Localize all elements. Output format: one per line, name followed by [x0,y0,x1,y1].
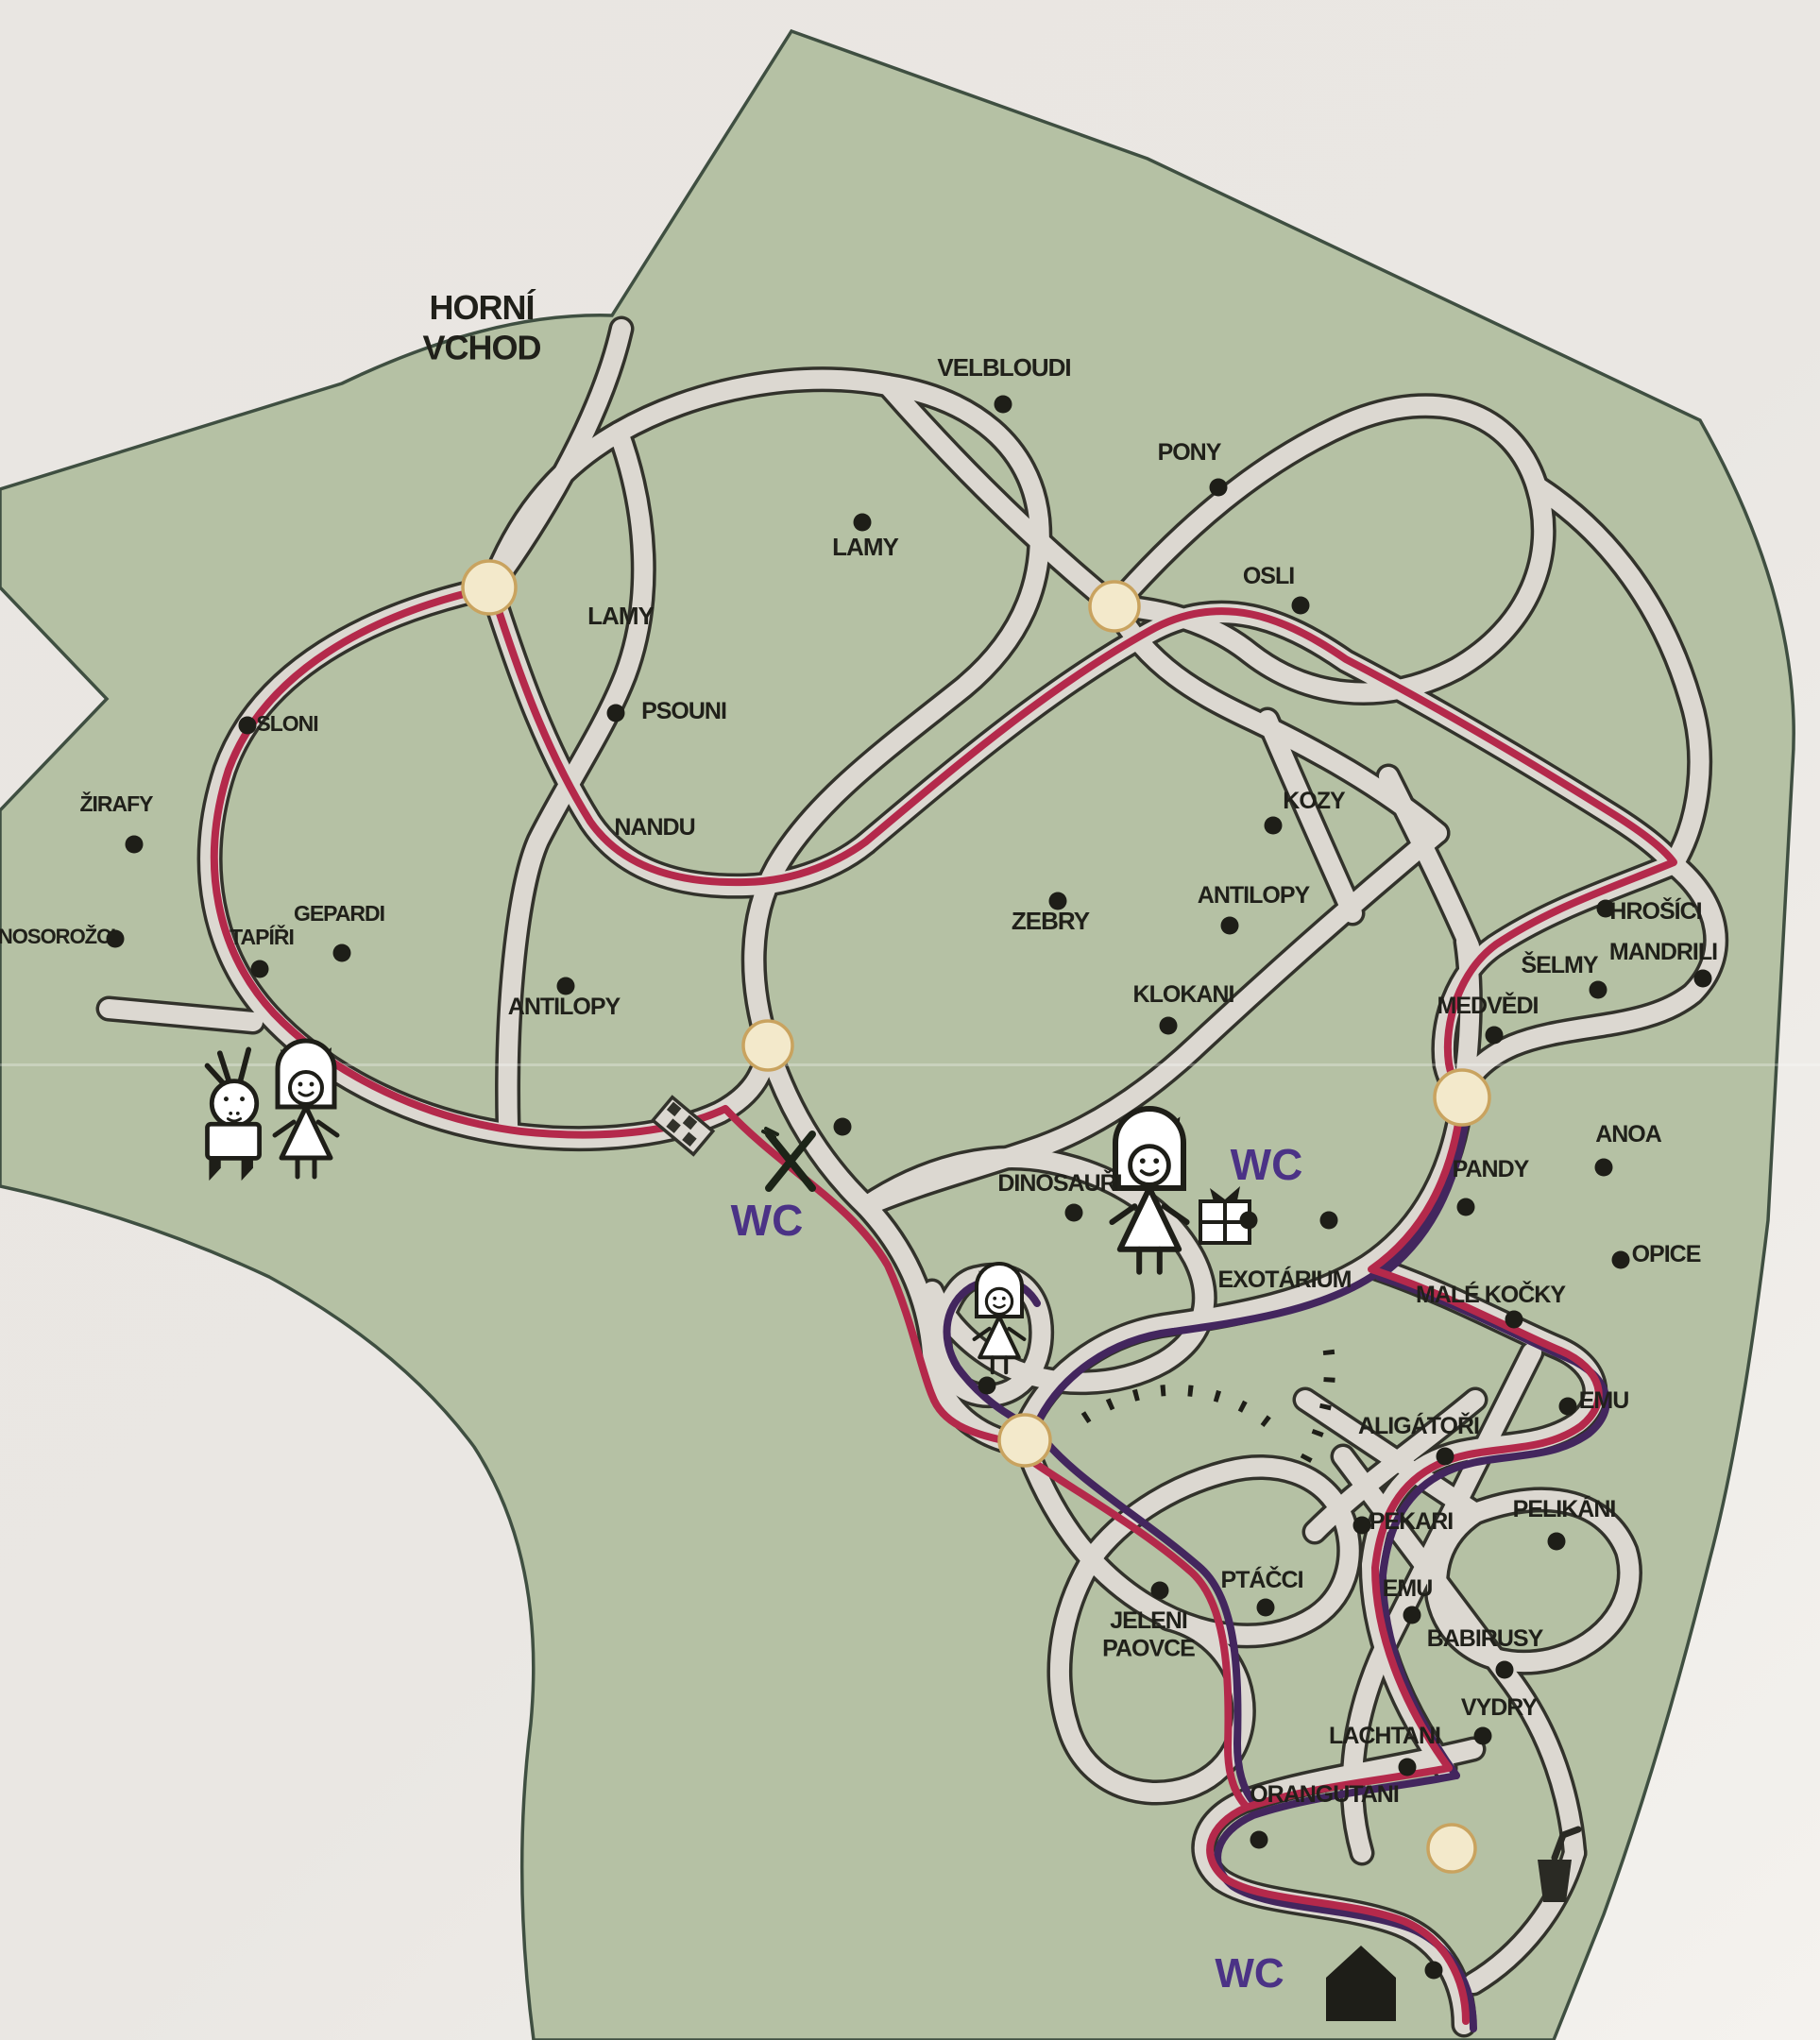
enclosure-label: NANDU [614,814,694,841]
enclosure-label: NOSOROŽCI [0,925,115,948]
location-dot [978,1377,996,1395]
enclosure-label: HROŠÍCI [1609,896,1701,925]
enclosure-label: PANDY [1453,1156,1530,1182]
wc-label: WC [1231,1140,1303,1189]
junction-circle [999,1415,1050,1466]
path-segment [109,1009,253,1022]
location-dot [333,944,351,962]
enclosure-label: ALIGÁTOŘI [1358,1411,1479,1439]
wc-label: WC [731,1196,804,1245]
enclosure-label: ANTILOPY [1198,882,1311,909]
location-dot [1320,1212,1338,1230]
location-dot [1457,1198,1475,1216]
location-dot [995,396,1012,414]
enclosure-label: EXOTÁRIUM [1218,1266,1352,1293]
location-dot [1437,1448,1454,1466]
location-dot [1505,1311,1523,1329]
enclosure-label: BABIRUSY [1427,1625,1544,1652]
enclosure-label: PSOUNI [641,698,726,724]
location-dot [1221,917,1239,935]
enclosure-label: PONY [1158,439,1222,466]
enclosure-label: PELIKÁNI [1513,1495,1616,1522]
location-dot [1250,1831,1268,1849]
zoo-map: HORNÍVCHODVELBLOUDIPONYLAMYOSLILAMYSLONI… [0,0,1820,2040]
junction-circle [463,561,516,614]
enclosure-label: SLONI [256,711,317,736]
location-dot [1292,597,1310,615]
enclosure-label: ANTILOPY [508,994,621,1020]
location-dot [1399,1759,1417,1776]
junction-circle [1428,1825,1475,1872]
enclosure-label: ANOA [1595,1121,1662,1147]
location-dot [1597,900,1615,918]
enclosure-label: KLOKANI [1133,981,1234,1008]
enclosure-label: PEKARI [1369,1508,1454,1535]
location-dot [1694,970,1712,988]
location-dot [1210,479,1228,497]
enclosure-label: PTÁČCI [1220,1565,1302,1593]
location-dot [1612,1251,1630,1269]
location-dot [126,836,144,854]
wc-label: WC [1215,1950,1284,1997]
enclosure-label: KOZY [1283,788,1346,814]
location-dot [1496,1661,1514,1679]
location-dot [1240,1212,1258,1230]
location-dot [1559,1398,1577,1416]
enclosure-label: MEDVĚDI [1437,991,1539,1019]
location-dot [1474,1727,1492,1745]
location-dot [1548,1533,1566,1551]
location-dot [1257,1599,1275,1617]
location-dot [854,514,872,532]
location-dot [1590,981,1607,999]
location-dot [1425,1962,1443,1980]
location-dot [1353,1517,1371,1535]
enclosure-label: ZEBRY [1012,907,1090,935]
location-dot [251,960,269,978]
enclosure-label: LACHTANI [1329,1723,1440,1749]
location-dot [607,705,625,722]
enclosure-label: OSLI [1243,563,1294,589]
enclosure-label: EMU [1383,1575,1433,1602]
enclosure-label: JELENIPAOVCE [1102,1607,1195,1662]
location-dot [1486,1027,1504,1045]
location-dot [239,717,257,735]
junction-circle [1435,1070,1489,1125]
location-dot [107,930,125,948]
location-dot [1160,1017,1178,1035]
enclosure-label: EMU [1579,1387,1629,1414]
enclosure-label: MANDRILI [1609,939,1717,965]
location-dot [1595,1159,1613,1177]
entrance-label: HORNÍVCHOD [422,288,540,366]
fold-line [0,1063,1820,1066]
enclosure-label: VYDRY [1461,1694,1539,1721]
enclosure-label: ŽIRAFY [79,790,153,816]
enclosure-label: VELBLOUDI [937,353,1070,382]
location-dot [1151,1582,1169,1600]
enclosure-label: LAMY [832,533,898,561]
enclosure-label: LAMY [587,602,654,630]
enclosure-label: ŠELMY [1521,950,1598,978]
location-dot [834,1118,852,1136]
junction-circle [1090,582,1139,631]
location-dot [1265,817,1283,835]
enclosure-label: TAPÍŘI [230,924,294,949]
enclosure-label: MALÉ KOČKY [1416,1280,1566,1308]
location-dot [1049,892,1067,910]
location-dot [557,977,575,995]
enclosure-label: OPICE [1632,1241,1701,1267]
girl-icon [975,1264,1025,1372]
enclosure-label: DINOSAUŘI [997,1168,1121,1197]
location-dot [1403,1606,1421,1624]
junction-circle [743,1021,792,1070]
enclosure-label: ORANGUTANI [1250,1781,1399,1808]
location-dot [1065,1204,1083,1222]
enclosure-label: GEPARDI [294,901,384,926]
